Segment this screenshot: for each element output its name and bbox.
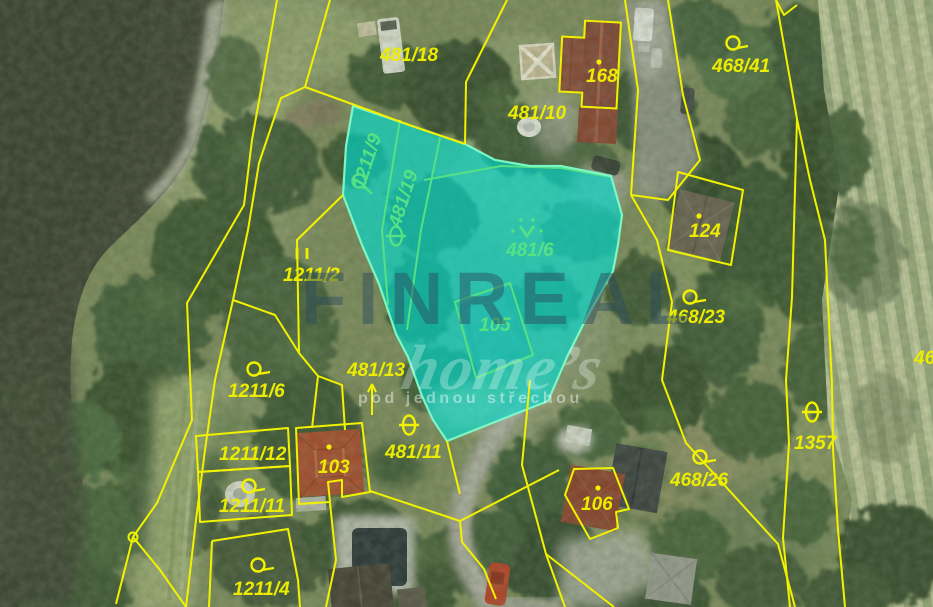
svg-text:468/41: 468/41	[711, 56, 770, 77]
svg-text:103: 103	[318, 457, 350, 478]
svg-text:481/11: 481/11	[384, 442, 442, 463]
svg-text:46: 46	[913, 348, 933, 369]
svg-text:106: 106	[581, 494, 613, 515]
svg-text:1211/4: 1211/4	[233, 579, 290, 600]
svg-text:1357: 1357	[794, 433, 838, 454]
svg-text:pod jednou střechou: pod jednou střechou	[358, 390, 583, 407]
svg-text:1211/6: 1211/6	[228, 381, 285, 402]
svg-text:1211/11: 1211/11	[219, 496, 285, 517]
svg-text:168: 168	[586, 66, 618, 87]
svg-text:481/10: 481/10	[507, 103, 567, 124]
svg-text:481/18: 481/18	[379, 45, 439, 66]
svg-text:124: 124	[689, 221, 721, 242]
svg-text:1211/12: 1211/12	[219, 444, 287, 465]
svg-text:FINREAL: FINREAL	[301, 257, 702, 340]
svg-text:468/26: 468/26	[669, 470, 729, 491]
svg-text:481/13: 481/13	[346, 360, 406, 381]
